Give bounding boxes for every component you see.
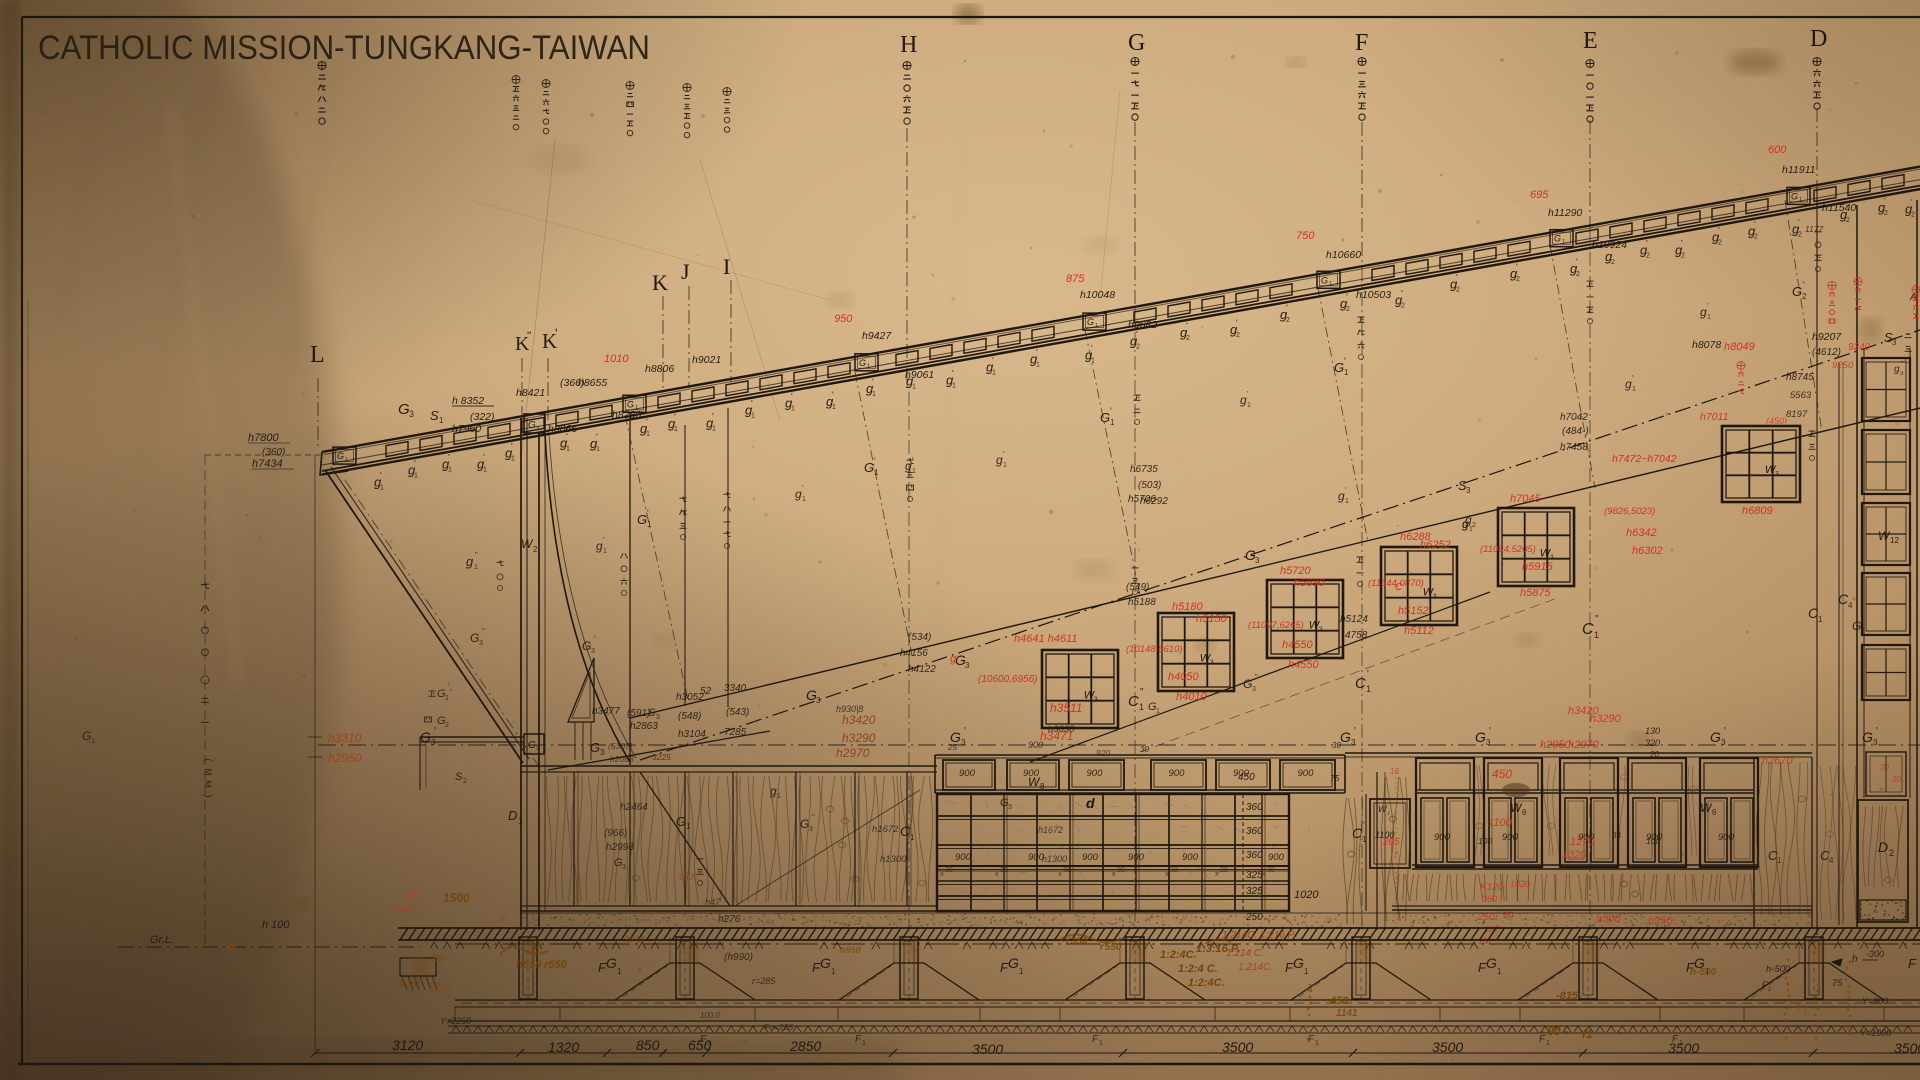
- svg-text:h3104: h3104: [678, 729, 706, 740]
- svg-text:C: C: [1582, 621, 1594, 638]
- svg-text:h3290: h3290: [1590, 713, 1621, 725]
- svg-text:Y=900: Y=900: [1862, 996, 1888, 1006]
- svg-text:C: C: [1128, 693, 1139, 710]
- svg-text:2: 2: [1798, 232, 1802, 239]
- svg-text:': ': [1576, 257, 1578, 267]
- svg-text:2: 2: [1911, 211, 1915, 218]
- svg-text:G: G: [1791, 191, 1798, 201]
- svg-text:D: D: [508, 808, 517, 823]
- svg-text:3: 3: [1486, 738, 1491, 747]
- svg-text:': ': [1516, 262, 1518, 272]
- svg-text:h1672: h1672: [872, 824, 899, 835]
- svg-text:1: 1: [832, 404, 836, 411]
- svg-text:1010: 1010: [604, 353, 629, 365]
- svg-text:4: 4: [1848, 601, 1853, 610]
- svg-text:": ": [475, 551, 478, 560]
- svg-text:(548): (548): [678, 711, 701, 722]
- svg-text:3: 3: [431, 738, 436, 747]
- svg-text:1100: 1100: [1488, 817, 1513, 829]
- svg-text:h2464: h2464: [620, 802, 648, 813]
- svg-text:1 50: 1 50: [398, 977, 420, 989]
- svg-text:1: 1: [1036, 362, 1040, 369]
- svg-text:1: 1: [1497, 967, 1502, 976]
- svg-text:3: 3: [965, 661, 970, 670]
- svg-text:3: 3: [409, 409, 414, 419]
- svg-text:G: G: [337, 451, 344, 461]
- svg-text:9240: 9240: [1848, 342, 1871, 353]
- svg-text:h2950: h2950: [328, 751, 362, 765]
- svg-text:3: 3: [591, 648, 595, 655]
- svg-text:G: G: [1710, 729, 1721, 745]
- svg-text:3: 3: [1319, 626, 1323, 633]
- svg-text:450: 450: [1492, 767, 1512, 781]
- svg-text:52: 52: [700, 686, 712, 697]
- svg-text:G: G: [82, 729, 91, 743]
- svg-text:3: 3: [479, 640, 483, 647]
- svg-text:1: 1: [603, 548, 607, 555]
- svg-text:100: 100: [1646, 836, 1660, 846]
- svg-text:J: J: [681, 259, 690, 284]
- svg-text:G: G: [582, 639, 591, 653]
- svg-text:850: 850: [636, 1037, 660, 1053]
- svg-text:G: G: [1087, 317, 1094, 327]
- svg-text:r=285: r=285: [752, 976, 776, 986]
- svg-text:M: M: [203, 780, 213, 788]
- svg-text:1:214 C.: 1:214 C.: [1226, 948, 1264, 959]
- svg-text:1: 1: [1344, 368, 1349, 377]
- svg-text:875: 875: [1066, 273, 1085, 285]
- svg-text:205: 205: [1382, 837, 1400, 848]
- svg-text:100: 100: [1478, 836, 1492, 846]
- svg-text:h3310: h3310: [328, 731, 362, 745]
- svg-text:900: 900: [1182, 852, 1199, 863]
- svg-text:G: G: [627, 399, 634, 409]
- svg-text:h8421: h8421: [516, 387, 545, 399]
- svg-text:h: h: [1852, 954, 1858, 965]
- svg-text:900: 900: [1169, 768, 1186, 779]
- svg-text:Y=1000: Y=1000: [1860, 1028, 1891, 1038]
- svg-text:1:2:4C.: 1:2:4C.: [1188, 977, 1225, 989]
- svg-text:F: F: [1355, 30, 1368, 56]
- svg-text:x: x: [1262, 869, 1266, 878]
- svg-text:1: 1: [791, 405, 795, 412]
- svg-text:g: g: [596, 539, 603, 553]
- svg-text:900: 900: [1434, 832, 1451, 843]
- svg-text:1: 1: [1003, 462, 1007, 469]
- svg-text:3: 3: [1775, 471, 1779, 478]
- svg-text:h8806: h8806: [645, 363, 674, 375]
- svg-text:3120: 3120: [392, 1037, 423, 1053]
- svg-text:1: 1: [872, 391, 876, 398]
- svg-text:F: F: [1092, 1034, 1099, 1045]
- svg-text:': ': [1236, 318, 1238, 328]
- svg-text:1: 1: [712, 425, 716, 432]
- svg-text:1500: 1500: [443, 891, 470, 905]
- svg-text:': ': [1401, 288, 1403, 298]
- svg-text:3: 3: [656, 714, 660, 721]
- svg-text:3500: 3500: [1668, 1040, 1699, 1056]
- svg-text:3: 3: [1094, 696, 1098, 703]
- svg-text:h2950: h2950: [1540, 739, 1571, 751]
- svg-text:': ': [1363, 820, 1365, 830]
- svg-text:h7960: h7960: [452, 423, 481, 435]
- svg-text:g: g: [950, 653, 957, 665]
- svg-text:Y550: Y550: [1098, 942, 1122, 953]
- svg-text:G: G: [1475, 729, 1486, 745]
- svg-text:G: G: [1321, 275, 1328, 285]
- svg-text:2: 2: [1576, 271, 1580, 278]
- svg-text:(360): (360): [262, 447, 285, 458]
- svg-text:h3511: h3511: [1050, 701, 1082, 715]
- svg-text:1320: 1320: [1562, 849, 1587, 861]
- svg-text:CATHOLIC MISSION-TUNGKANG-TAIW: CATHOLIC MISSION-TUNGKANG-TAIWAN: [38, 29, 650, 67]
- svg-text:G: G: [606, 955, 617, 971]
- svg-text:3: 3: [1008, 804, 1012, 811]
- svg-text:(966): (966): [604, 828, 627, 839]
- svg-text:G: G: [470, 631, 479, 645]
- svg-text:1: 1: [518, 817, 523, 826]
- svg-text:C: C: [1395, 582, 1403, 593]
- svg-text:': ': [1724, 726, 1726, 737]
- svg-text:3225: 3225: [652, 752, 671, 762]
- svg-text:C: C: [1355, 675, 1366, 692]
- svg-text:h2998: h2998: [606, 842, 634, 853]
- svg-text:': ': [414, 459, 416, 469]
- svg-text:': ': [1754, 219, 1756, 229]
- svg-text:h276: h276: [718, 914, 741, 925]
- svg-text:h6252: h6252: [1420, 539, 1451, 551]
- svg-text:75: 75: [1330, 773, 1340, 783]
- svg-text:h4641 h4611: h4641 h4611: [1014, 633, 1077, 645]
- svg-text:h7434: h7434: [252, 458, 283, 470]
- svg-text:E: E: [1583, 28, 1598, 54]
- svg-text:1: 1: [414, 473, 418, 480]
- svg-text:(10148,6610): (10148,6610): [1126, 644, 1183, 655]
- svg-text:h-500: h-500: [1690, 967, 1717, 978]
- svg-text:1: 1: [1803, 1006, 1808, 1015]
- svg-text:1: 1: [1099, 1040, 1103, 1047]
- svg-text:(484-): (484-): [1562, 426, 1589, 437]
- svg-text:h6735: h6735: [1130, 464, 1158, 475]
- svg-text:h47: h47: [705, 897, 721, 907]
- svg-text:': ': [1911, 197, 1913, 207]
- svg-text:': ': [1136, 330, 1138, 340]
- svg-text:4: 4: [1829, 856, 1834, 865]
- svg-text:h930|8: h930|8: [836, 704, 863, 714]
- svg-text:h7472~h7042: h7472~h7042: [1612, 453, 1677, 465]
- svg-text:900: 900: [1082, 852, 1099, 863]
- svg-text:f1: f1: [1582, 1027, 1593, 1041]
- svg-text:': ': [1354, 726, 1356, 737]
- svg-text:1: 1: [912, 384, 916, 391]
- svg-text:h9682: h9682: [1128, 319, 1157, 331]
- svg-text:1:2:4C.: 1:2:4C.: [1160, 949, 1197, 961]
- svg-text:1: 1: [1139, 702, 1144, 712]
- svg-text:x: x: [1215, 869, 1219, 878]
- svg-text:1141: 1141: [1336, 1008, 1358, 1019]
- svg-text:h4156: h4156: [900, 648, 928, 659]
- svg-text:(10600,6956): (10600,6956): [978, 674, 1038, 685]
- svg-text:360: 360: [1246, 826, 1263, 837]
- svg-text:G: G: [1792, 284, 1802, 299]
- svg-text:': ': [791, 391, 793, 401]
- svg-text:3: 3: [809, 826, 813, 833]
- svg-text:h3420: h3420: [842, 713, 876, 727]
- svg-text:16: 16: [1390, 767, 1399, 776]
- svg-text:h-500: h-500: [1766, 964, 1791, 975]
- svg-text:2: 2: [1889, 848, 1894, 858]
- svg-text:G: G: [590, 740, 600, 755]
- svg-text:30: 30: [1170, 867, 1178, 874]
- svg-text:h7800: h7800: [248, 432, 279, 444]
- svg-text:g: g: [1338, 489, 1345, 503]
- svg-text:1: 1: [777, 793, 781, 800]
- svg-text:': ': [952, 369, 954, 379]
- svg-text:750: 750: [1296, 230, 1315, 242]
- svg-text:2: 2: [1286, 317, 1290, 324]
- svg-text:': ': [712, 411, 714, 421]
- svg-text:2: 2: [1516, 276, 1520, 283]
- svg-text:x: x: [1112, 869, 1116, 878]
- svg-text:1: 1: [511, 455, 515, 462]
- svg-text:3: 3: [1210, 659, 1214, 666]
- svg-text:': ': [1489, 726, 1491, 737]
- svg-text:1: 1: [91, 738, 95, 745]
- svg-text:900: 900: [1028, 740, 1043, 750]
- svg-text:h10503: h10503: [1356, 289, 1391, 301]
- svg-text:G: G: [1340, 729, 1351, 745]
- svg-text:": ": [482, 627, 485, 636]
- svg-text:3: 3: [1466, 486, 1471, 495]
- svg-text:G: G: [820, 955, 831, 971]
- svg-text:h3477: h3477: [592, 706, 620, 717]
- svg-text:x: x: [1165, 869, 1169, 878]
- svg-text:': ': [594, 634, 596, 644]
- svg-text:h8280: h8280: [612, 409, 641, 421]
- svg-text:1: 1: [952, 383, 956, 390]
- svg-text:3340: 3340: [724, 683, 747, 694]
- svg-text:1320: 1320: [548, 1039, 579, 1055]
- svg-text:': ': [380, 471, 382, 481]
- svg-text:': ': [1681, 238, 1683, 248]
- svg-text:Y350: Y350: [1064, 936, 1088, 947]
- svg-text:h5875: h5875: [1520, 587, 1551, 599]
- svg-text:h11290: h11290: [1548, 207, 1582, 219]
- svg-text:G: G: [1100, 410, 1110, 425]
- svg-text:(h990): (h990): [724, 952, 753, 963]
- svg-text:1: 1: [831, 967, 836, 976]
- svg-text:h9207: h9207: [1812, 331, 1842, 343]
- svg-text:': ': [1367, 669, 1369, 680]
- svg-text:": ": [1595, 614, 1599, 625]
- svg-text:900: 900: [1298, 768, 1315, 779]
- svg-text:1: 1: [912, 468, 916, 475]
- svg-text:(322): (322): [470, 411, 495, 423]
- svg-text:': ': [511, 441, 513, 451]
- svg-text:h 100: h 100: [262, 919, 290, 931]
- svg-text:(450): (450): [1766, 416, 1787, 426]
- svg-text:(5307): (5307): [608, 741, 633, 751]
- svg-text:h100: h100: [394, 904, 414, 914]
- svg-text:h8066: h8066: [548, 423, 577, 435]
- svg-text:3: 3: [1873, 738, 1878, 747]
- svg-text:S: S: [455, 771, 463, 783]
- svg-text:": ": [527, 329, 531, 343]
- svg-text:K: K: [652, 270, 668, 295]
- svg-text:h5150: h5150: [1196, 613, 1227, 625]
- svg-text:h4550: h4550: [1288, 659, 1319, 671]
- svg-text:2: 2: [1846, 217, 1850, 224]
- svg-text:1: 1: [874, 468, 879, 477]
- svg-text:75: 75: [1832, 978, 1843, 989]
- svg-text:920: 920: [1096, 748, 1110, 758]
- svg-text:h11911: h11911: [1782, 164, 1815, 176]
- svg-text:G: G: [1334, 360, 1344, 375]
- svg-text:G: G: [1486, 955, 1497, 971]
- svg-text:G: G: [950, 729, 961, 745]
- svg-text:900: 900: [1268, 852, 1285, 863]
- svg-text:3: 3: [1433, 593, 1437, 600]
- svg-text:1: 1: [596, 446, 600, 453]
- svg-text:g: g: [795, 487, 802, 501]
- svg-text:1: 1: [1110, 418, 1115, 427]
- svg-text:650: 650: [688, 1037, 712, 1053]
- svg-text:G: G: [420, 729, 431, 745]
- svg-text:30: 30: [1880, 763, 1889, 772]
- svg-text:K120: K120: [1480, 882, 1504, 893]
- svg-text:h550 r550: h550 r550: [516, 959, 568, 971]
- svg-text:-815-: -815-: [1556, 990, 1582, 1002]
- svg-text:': ': [964, 726, 966, 737]
- svg-text:900: 900: [1128, 852, 1145, 863]
- svg-text:G: G: [864, 460, 874, 475]
- svg-text:30: 30: [1117, 867, 1125, 874]
- svg-text:- 90 -: - 90 -: [1540, 1024, 1568, 1038]
- svg-text:h3038: h3038: [1048, 724, 1075, 735]
- svg-text:h4010: h4010: [1176, 691, 1207, 703]
- svg-text:g: g: [770, 784, 777, 798]
- svg-text:1:214C.: 1:214C.: [1238, 962, 1273, 973]
- svg-text:1: 1: [445, 695, 449, 702]
- svg-text:': ': [832, 390, 834, 400]
- svg-text:h2863: h2863: [630, 721, 658, 732]
- svg-text:h5915: h5915: [1522, 561, 1553, 573]
- svg-text:2: 2: [463, 778, 467, 785]
- svg-text:h6342: h6342: [1626, 527, 1657, 539]
- svg-text:2: 2: [1472, 522, 1476, 529]
- svg-text:3500: 3500: [1894, 1040, 1920, 1056]
- svg-text:G: G: [1852, 619, 1861, 633]
- svg-text:': ': [1286, 303, 1288, 313]
- svg-text:1500: 1500: [678, 872, 698, 882]
- svg-text:900: 900: [959, 768, 976, 779]
- svg-text:1: 1: [751, 413, 755, 420]
- svg-text:8: 8: [1040, 782, 1045, 791]
- svg-text:x: x: [940, 869, 944, 878]
- svg-text:': ': [1798, 218, 1800, 228]
- svg-text:6: 6: [1712, 808, 1717, 817]
- svg-text:30: 30: [1220, 867, 1228, 874]
- svg-text:g: g: [1625, 377, 1632, 391]
- svg-text:1: 1: [1304, 967, 1309, 976]
- svg-text:3: 3: [622, 864, 626, 871]
- svg-text:1020: 1020: [1294, 889, 1319, 901]
- svg-text:2: 2: [445, 722, 449, 729]
- svg-text:(534): (534): [908, 632, 931, 643]
- svg-text:g: g: [466, 554, 474, 569]
- svg-text:h 8352: h 8352: [452, 395, 484, 407]
- svg-text:h4050: h4050: [1168, 671, 1199, 683]
- svg-text:(9826,5023): (9826,5023): [1604, 506, 1655, 517]
- svg-text:325: 325: [1246, 870, 1263, 881]
- svg-text:h6302: h6302: [1632, 545, 1663, 557]
- svg-text:1: 1: [439, 416, 444, 425]
- svg-text:h2970: h2970: [1568, 739, 1599, 751]
- svg-text:": ": [812, 813, 815, 822]
- svg-text:30: 30: [945, 867, 953, 874]
- svg-text:1: 1: [448, 467, 452, 474]
- svg-text:-300: -300: [1866, 949, 1884, 959]
- svg-text:50: 50: [432, 954, 444, 965]
- svg-text:1: 1: [1019, 967, 1024, 976]
- svg-text:30: 30: [1000, 867, 1008, 874]
- svg-text:h11540: h11540: [1822, 202, 1856, 214]
- svg-text:g: g: [996, 453, 1003, 467]
- svg-text:1: 1: [647, 520, 652, 529]
- svg-text:D: D: [1810, 26, 1827, 52]
- svg-text:): ): [202, 794, 213, 797]
- svg-text:1: 1: [1315, 1040, 1319, 1047]
- svg-text:F: F: [855, 1034, 862, 1045]
- svg-text:Gr.L.: Gr.L.: [150, 934, 174, 946]
- svg-text:h950: h950: [840, 945, 861, 955]
- svg-text:3500: 3500: [1222, 1039, 1253, 1055]
- svg-text:': ': [1344, 356, 1346, 366]
- svg-text:1: 1: [802, 496, 806, 503]
- svg-text:h9021: h9021: [692, 354, 721, 366]
- svg-text:': ': [992, 355, 994, 365]
- svg-text:1:2:4 C.: 1:2:4 C.: [1178, 963, 1218, 975]
- svg-text:': ': [1346, 292, 1348, 302]
- svg-text:900: 900: [955, 852, 972, 863]
- svg-text:3: 3: [961, 738, 966, 747]
- svg-text:h8078: h8078: [1692, 339, 1721, 351]
- svg-text:1: 1: [1594, 630, 1599, 640]
- svg-text:G: G: [1554, 234, 1561, 244]
- svg-text:900: 900: [1718, 832, 1735, 843]
- svg-text:8197: 8197: [1786, 409, 1808, 420]
- svg-text:1: 1: [1546, 1040, 1550, 1047]
- svg-text:h9427: h9427: [862, 330, 892, 342]
- svg-text:(11097,6265): (11097,6265): [1248, 620, 1304, 631]
- svg-text:900: 900: [1502, 832, 1519, 843]
- svg-text:h1300: h1300: [1042, 854, 1067, 864]
- svg-text:G: G: [1243, 677, 1252, 691]
- svg-text:1: 1: [1818, 615, 1823, 624]
- svg-text:100,0: 100,0: [700, 1011, 721, 1020]
- svg-text:1177: 1177: [1805, 224, 1824, 234]
- svg-text:12: 12: [1890, 536, 1899, 545]
- svg-text:x: x: [1058, 869, 1062, 878]
- svg-text:G: G: [676, 814, 686, 829]
- svg-text:3: 3: [816, 696, 821, 705]
- svg-text:1: 1: [1362, 835, 1367, 844]
- svg-text:2: 2: [1754, 233, 1758, 240]
- svg-text:': ': [1803, 280, 1805, 290]
- svg-text:(366): (366): [560, 377, 585, 389]
- svg-text:2: 2: [1718, 240, 1722, 247]
- svg-text:G: G: [859, 358, 866, 368]
